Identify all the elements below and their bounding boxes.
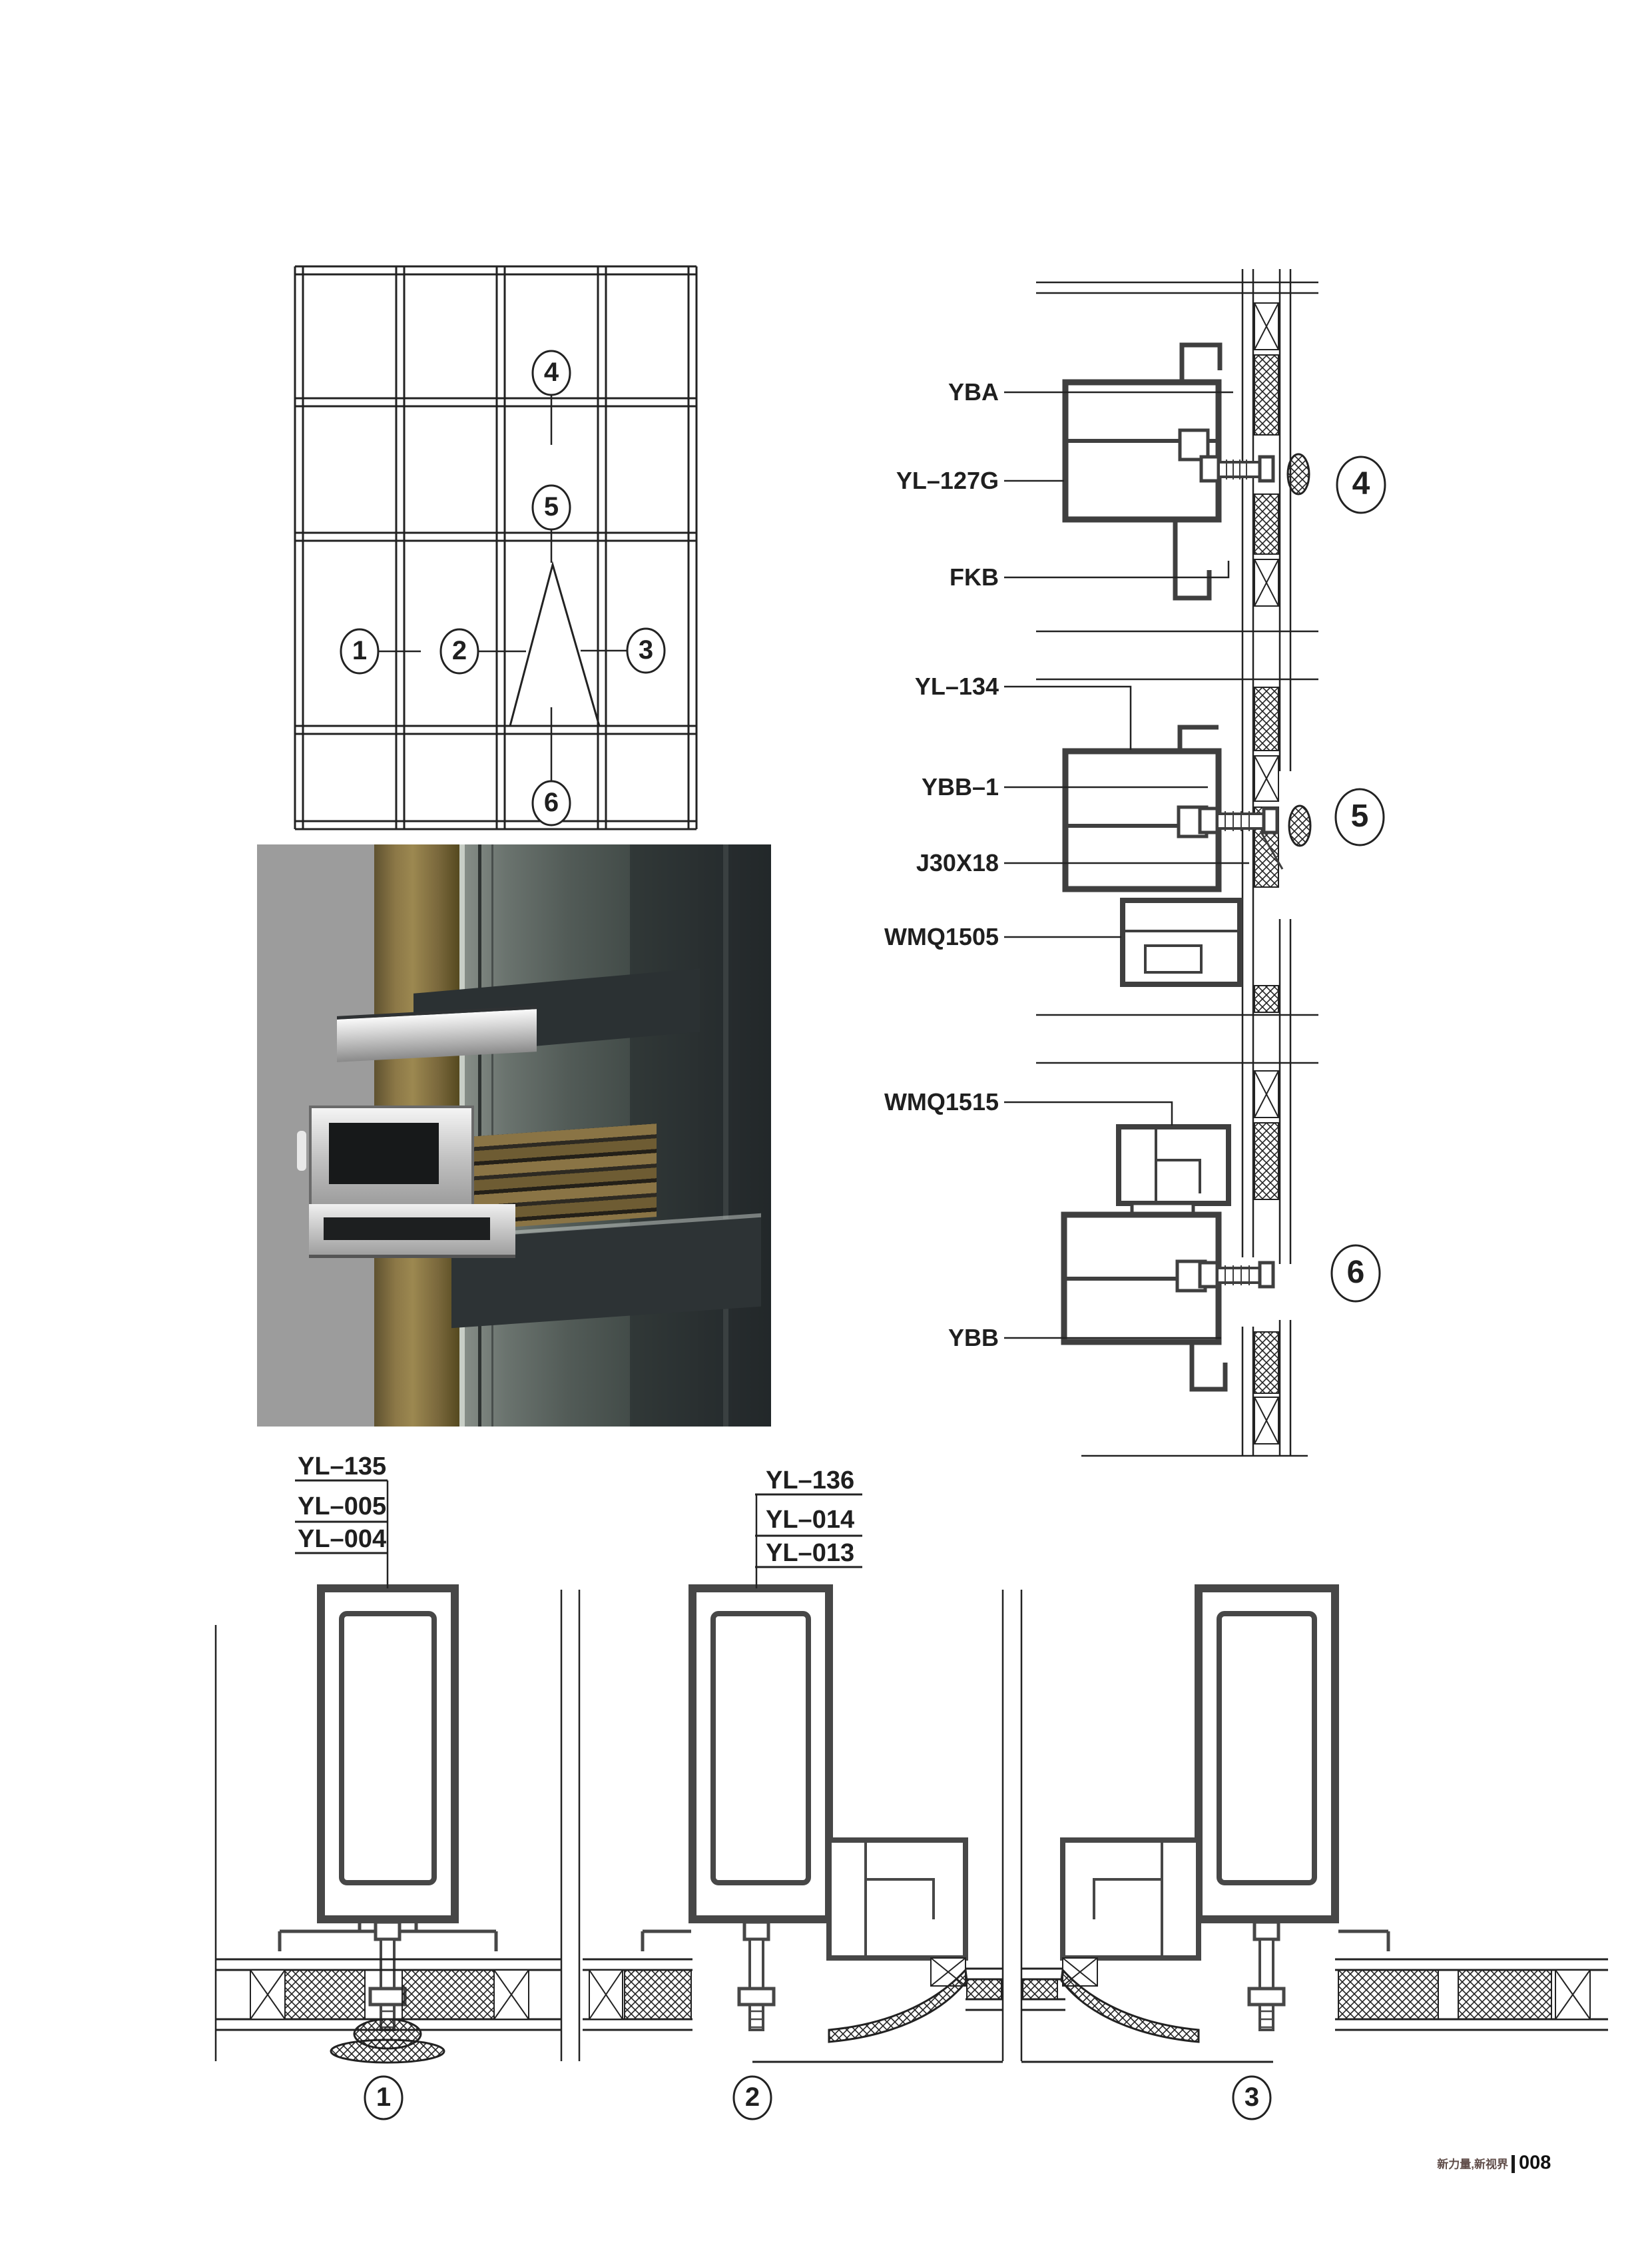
part-label-yl127g: YL–127G — [896, 469, 999, 493]
part-label-wmq1515: WMQ1515 — [884, 1090, 999, 1114]
part-label-yl135: YL–135 — [298, 1454, 386, 1479]
part-label-yl005: YL–005 — [298, 1494, 386, 1519]
footer-page-number: 008 — [1519, 2152, 1551, 2174]
part-label-fkb: FKB — [950, 565, 999, 589]
right-detail-callout-circles — [1332, 457, 1385, 1301]
part-label-wmq1505: WMQ1505 — [884, 925, 999, 949]
part-label-yl004: YL–004 — [298, 1526, 386, 1552]
elevation-callout-2: 2 — [452, 637, 467, 664]
part-label-ybb1: YBB–1 — [922, 775, 999, 799]
part-label-yl013: YL–013 — [766, 1540, 854, 1566]
elevation-callout-1: 1 — [352, 637, 367, 664]
bottom-detail-2-glazing — [583, 1958, 1003, 2062]
bottom-callout-circles — [365, 2077, 1270, 2119]
vent-triangle-symbol — [510, 565, 599, 726]
part-label-yba: YBA — [948, 380, 999, 404]
section-callout-5: 5 — [1351, 800, 1369, 832]
elevation-callout-6: 6 — [544, 789, 559, 816]
elevation-grid — [295, 266, 696, 829]
render-3d-profile-image — [257, 844, 771, 1427]
bottom-detail-3-glazing — [1021, 1958, 1608, 2062]
bottom-detail-2 — [643, 1588, 965, 2030]
bottom-callout-2: 2 — [745, 2084, 760, 2110]
bottom-detail-3 — [1063, 1588, 1388, 2030]
catalog-page: YBA YL–127G FKB YL–134 YBB–1 J30X18 WMQ1… — [0, 0, 1652, 2241]
section-callout-4: 4 — [1352, 468, 1370, 500]
footer-slogan: 新力量,新视界 — [1437, 2155, 1508, 2172]
part-label-yl014: YL–014 — [766, 1507, 854, 1532]
elevation-callout-circles — [341, 351, 665, 825]
part-label-yl136: YL–136 — [766, 1468, 854, 1493]
part-label-j30x18: J30X18 — [916, 851, 999, 875]
render-metal-glint — [297, 1131, 306, 1171]
section-callout-6: 6 — [1347, 1257, 1365, 1289]
bottom-detail-1 — [280, 1588, 496, 2030]
bottom-callout-1: 1 — [376, 2084, 391, 2110]
elevation-callout-5: 5 — [544, 493, 559, 520]
footer-divider — [1512, 2155, 1515, 2173]
render-channel-cavity — [329, 1123, 439, 1184]
render-bottom-bar-slot — [324, 1217, 490, 1240]
elevation-callout-4: 4 — [544, 359, 559, 386]
part-label-yl134: YL–134 — [915, 675, 999, 699]
bottom-callout-3: 3 — [1244, 2084, 1259, 2110]
elevation-callout-3: 3 — [639, 637, 653, 663]
part-label-ybb: YBB — [948, 1326, 999, 1350]
elevation-leaders — [378, 394, 627, 782]
cad-drawing-layer — [0, 0, 1652, 2241]
